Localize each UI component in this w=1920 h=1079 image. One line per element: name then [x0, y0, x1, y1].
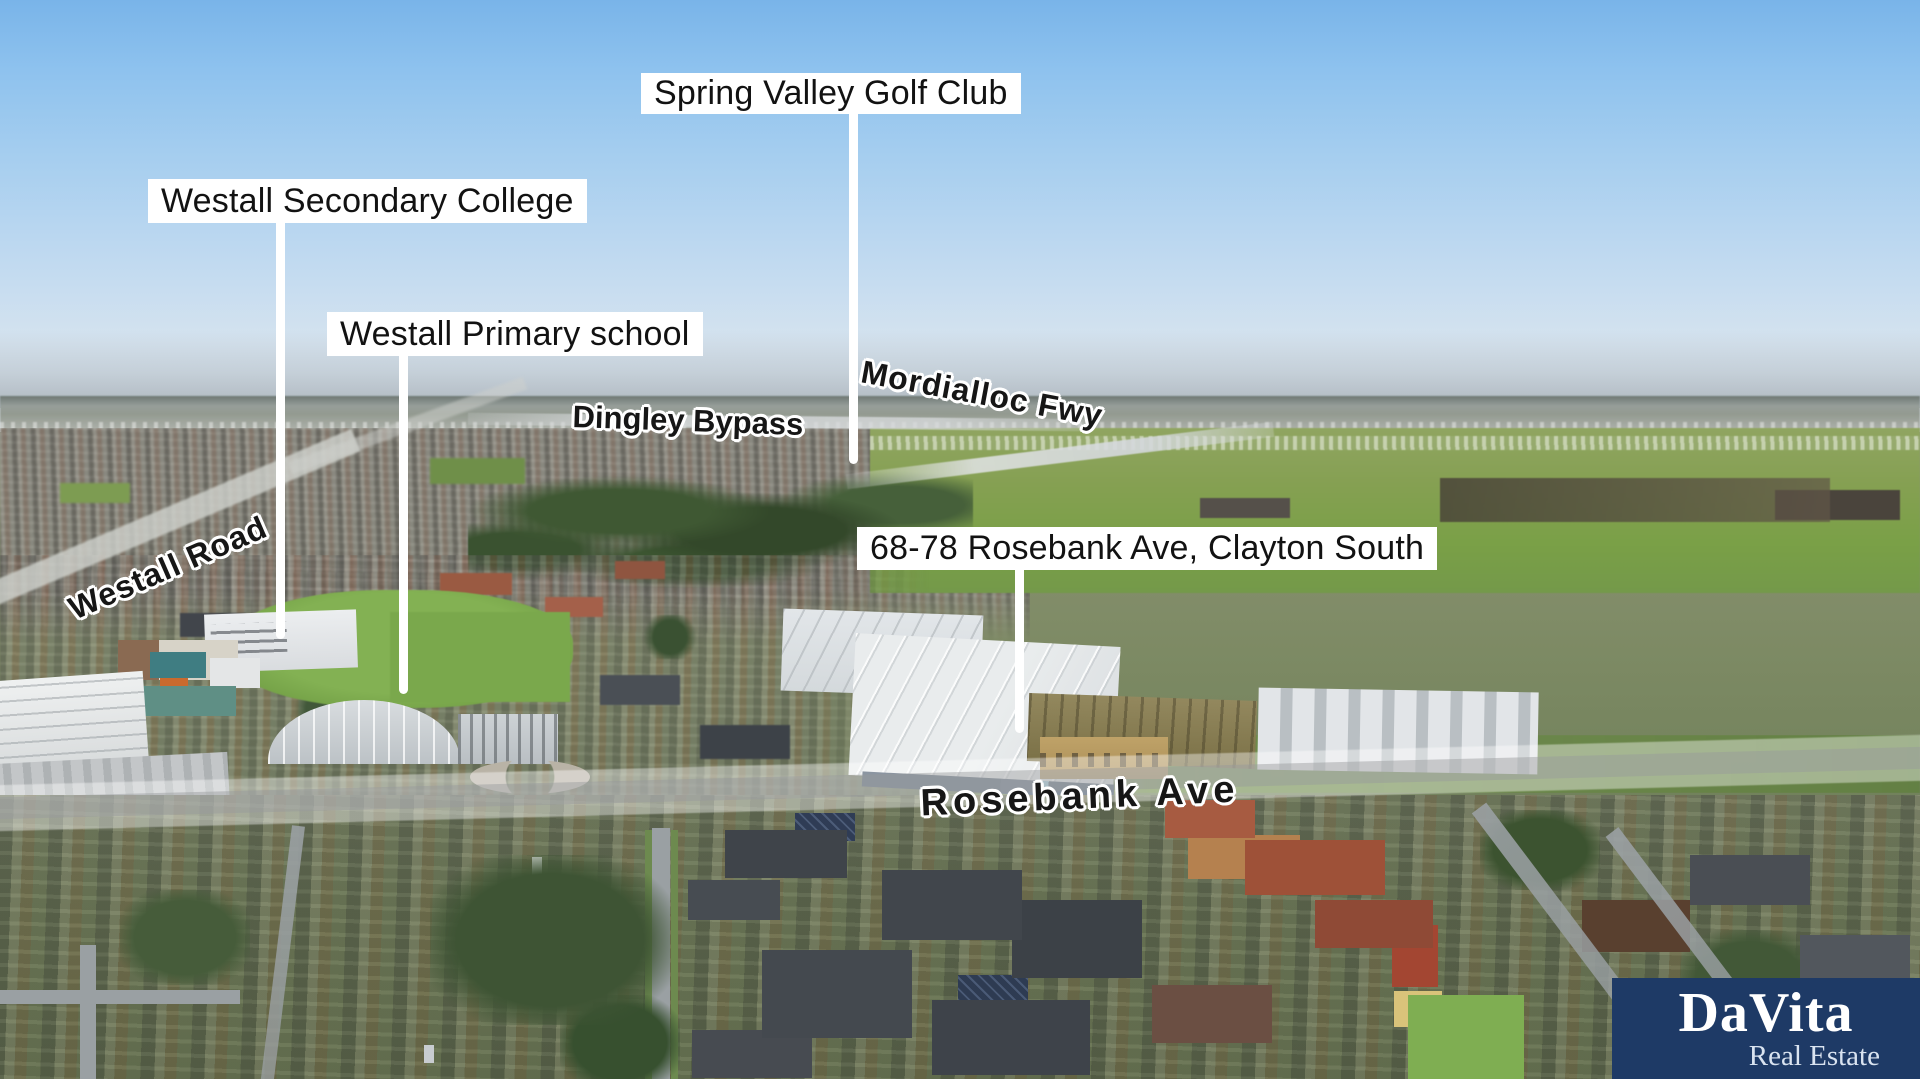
- label-westall-secondary-college: Westall Secondary College: [148, 179, 587, 223]
- primary-school-wing: [458, 714, 558, 764]
- label-spring-valley-golf-club: Spring Valley Golf Club: [641, 73, 1021, 114]
- aerial-photo-scene: Spring Valley Golf Club Westall Secondar…: [0, 0, 1920, 1079]
- leader-line-property: [1015, 567, 1024, 733]
- leader-line-primary-school: [399, 353, 408, 694]
- brand-tagline: Real Estate: [1612, 1040, 1920, 1072]
- label-westall-primary-school: Westall Primary school: [327, 312, 703, 356]
- leader-line-secondary-college: [276, 220, 285, 639]
- leader-line-spring-valley: [849, 112, 858, 464]
- teal-roof-building: [140, 686, 236, 716]
- label-property-address: 68-78 Rosebank Ave, Clayton South: [857, 527, 1437, 570]
- school-field: [390, 612, 570, 702]
- brand-panel: DaVita Real Estate: [1612, 978, 1920, 1079]
- brand-name: DaVita: [1612, 986, 1920, 1040]
